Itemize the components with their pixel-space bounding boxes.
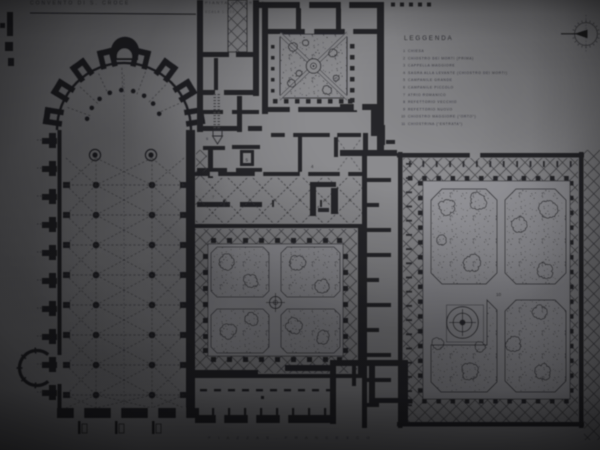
svg-text:10: 10 bbox=[401, 115, 405, 119]
svg-text:11: 11 bbox=[401, 122, 405, 126]
svg-text:SAGRA ALLA LEVANTE (CHIOSTRO D: SAGRA ALLA LEVANTE (CHIOSTRO DEI MORTI) bbox=[408, 71, 508, 75]
svg-text:REFETTORIO VECCHIO: REFETTORIO VECCHIO bbox=[408, 100, 457, 104]
svg-text:10: 10 bbox=[496, 292, 502, 297]
svg-text:4: 4 bbox=[403, 71, 405, 75]
svg-text:CAPPELLA MAGGIORE: CAPPELLA MAGGIORE bbox=[408, 64, 455, 68]
svg-text:CAMPANILE PICCOLO: CAMPANILE PICCOLO bbox=[408, 86, 454, 90]
svg-text:LEGGENDA: LEGGENDA bbox=[404, 35, 454, 42]
svg-text:6: 6 bbox=[403, 86, 405, 90]
svg-text:CHIOSTRO DEI MORTI (PRIMA): CHIOSTRO DEI MORTI (PRIMA) bbox=[408, 56, 474, 60]
svg-text:CHIOSTRO MAGGIORE (“ORTO”): CHIOSTRO MAGGIORE (“ORTO”) bbox=[408, 115, 476, 119]
svg-text:9: 9 bbox=[403, 107, 405, 111]
svg-text:3: 3 bbox=[403, 64, 405, 68]
svg-text:CHIOSTRINA (“ENTRATA”): CHIOSTRINA (“ENTRATA”) bbox=[408, 122, 463, 126]
svg-text:1: 1 bbox=[403, 49, 405, 53]
svg-text:ATRIO ROMANICO: ATRIO ROMANICO bbox=[408, 93, 446, 97]
svg-text:CAMPANILE GRANDE: CAMPANILE GRANDE bbox=[408, 78, 453, 82]
svg-text:CONVENTO DI S. CROCE: CONVENTO DI S. CROCE bbox=[30, 1, 130, 7]
svg-text:5: 5 bbox=[403, 78, 405, 82]
svg-text:P I A Z Z A S . F R A N: P I A Z Z A S . F R A N C E S C O bbox=[208, 435, 373, 440]
svg-text:8: 8 bbox=[403, 100, 405, 104]
svg-text:2: 2 bbox=[403, 56, 405, 60]
svg-text:CHIESA: CHIESA bbox=[408, 49, 424, 53]
svg-text:7: 7 bbox=[403, 93, 405, 97]
svg-text:REFETTORIO NUOVO: REFETTORIO NUOVO bbox=[408, 107, 453, 111]
